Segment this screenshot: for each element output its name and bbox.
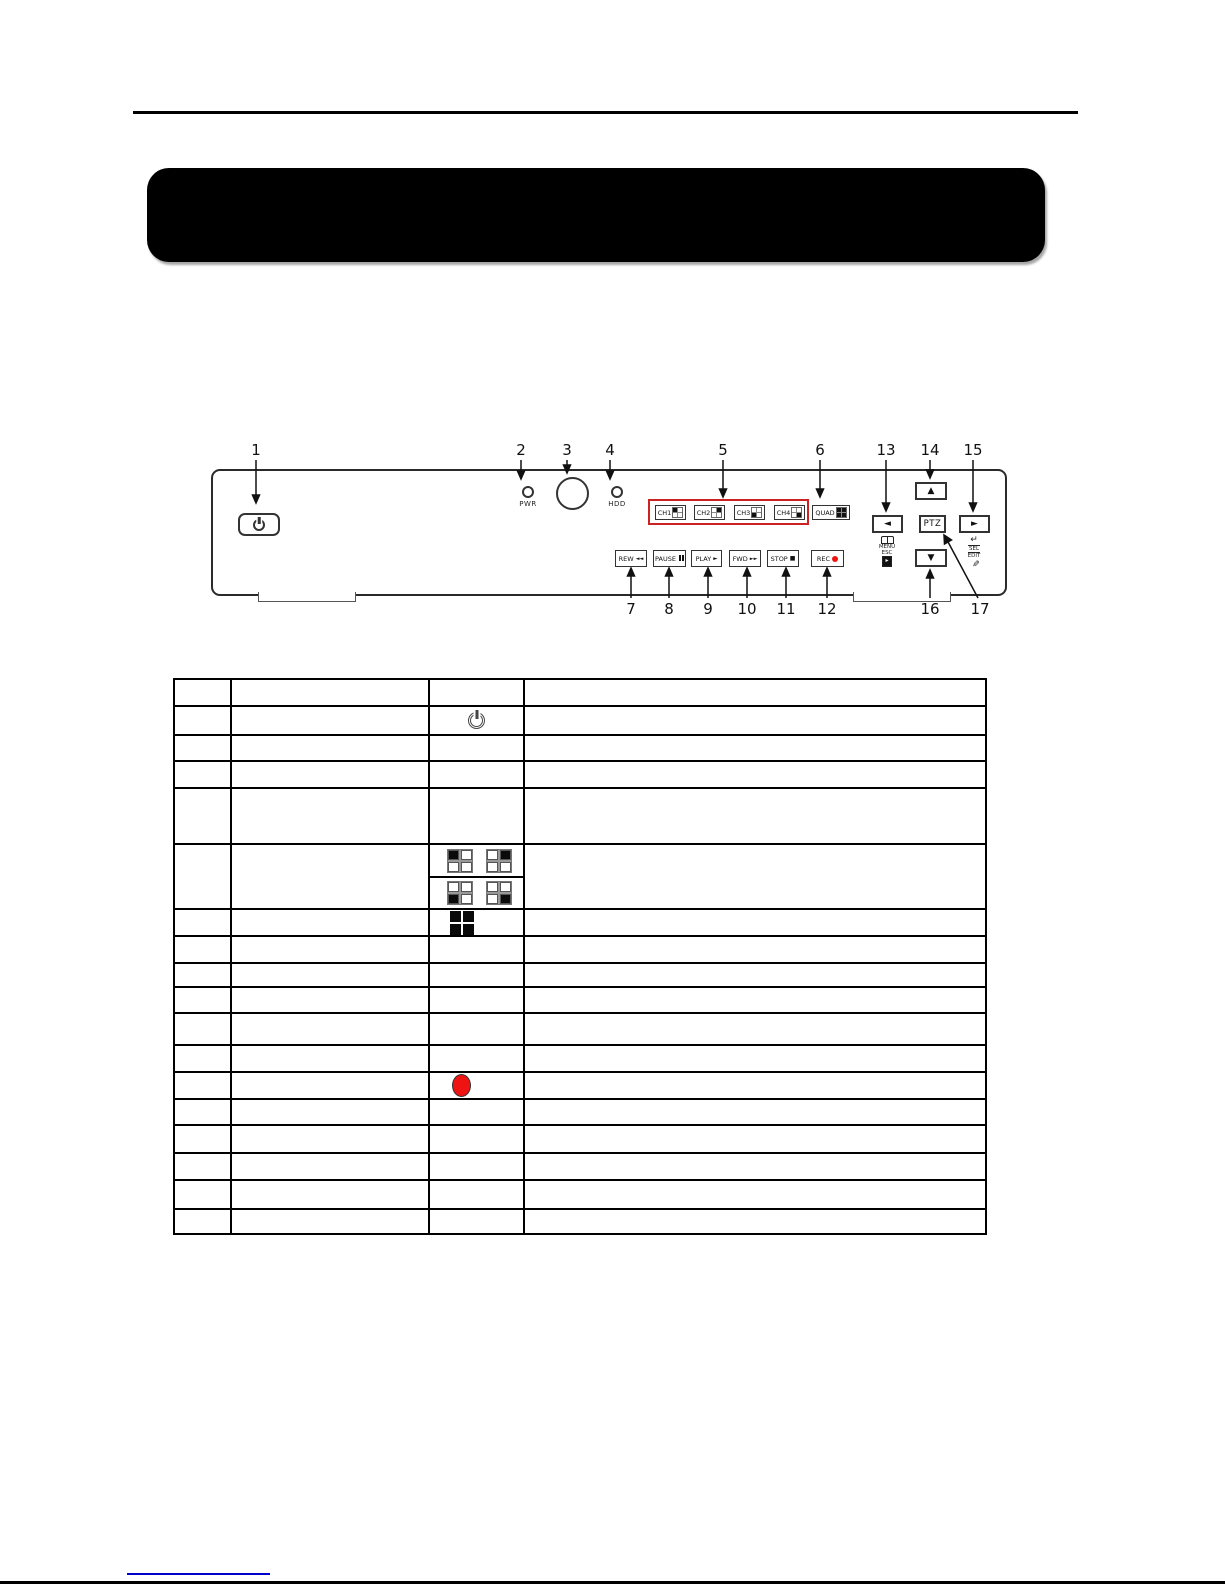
callout-5: 5 xyxy=(718,441,728,459)
exit-door-icon: ▸ xyxy=(882,556,892,567)
power-icon xyxy=(253,519,265,531)
ptz-label: PTZ xyxy=(924,519,942,529)
right-select-button[interactable]: ► xyxy=(959,515,990,533)
power-icon xyxy=(468,712,485,729)
footer-link-underline[interactable] xyxy=(127,1573,270,1575)
hdd-led-label: HDD xyxy=(603,500,631,508)
quad-all-icon xyxy=(450,911,523,935)
up-button[interactable]: ▲ xyxy=(915,482,947,500)
callout-12: 12 xyxy=(817,600,836,618)
record-dot-icon xyxy=(452,1074,471,1097)
table-row-7 xyxy=(174,936,986,963)
table-row-16 xyxy=(174,1180,986,1209)
table-row-4 xyxy=(174,788,986,844)
stop-label: STOP xyxy=(771,555,788,563)
ch1-label: CH1 xyxy=(658,509,672,517)
menu-esc-legend: MENU ESC ▸ xyxy=(876,536,898,567)
table-header-row xyxy=(174,679,986,706)
pause-button[interactable]: PAUSE xyxy=(653,550,686,567)
table-row-13 xyxy=(174,1099,986,1125)
sel-label: SEL xyxy=(968,545,980,553)
page-bottom-rule xyxy=(0,1581,1225,1584)
table-row-9 xyxy=(174,987,986,1013)
quad-bottom-right-icon xyxy=(791,507,802,518)
quad-button[interactable]: QUAD xyxy=(812,505,850,520)
play-label: PLAY xyxy=(696,555,712,563)
pencil-icon: ✎ xyxy=(969,560,978,568)
left-menu-button[interactable]: ◄ xyxy=(872,515,903,533)
enter-icon: ↵ xyxy=(970,536,978,545)
quad-bottom-right-icon xyxy=(486,881,512,905)
edit-label: EDIT xyxy=(968,553,981,559)
play-icon: ► xyxy=(713,556,717,562)
callout-1: 1 xyxy=(251,441,261,459)
ch4-button[interactable]: CH4 xyxy=(774,505,805,520)
fwd-label: FWD xyxy=(733,555,748,563)
rewind-icon: ◄◄ xyxy=(636,556,644,562)
callout-11: 11 xyxy=(776,600,795,618)
callout-17: 17 xyxy=(970,600,989,618)
ch1-button[interactable]: CH1 xyxy=(655,505,686,520)
table-row-1 xyxy=(174,706,986,735)
record-icon xyxy=(832,556,838,562)
right-arrow-icon: ► xyxy=(971,519,978,529)
ir-receiver xyxy=(556,477,589,510)
callout-8: 8 xyxy=(664,600,674,618)
ch2-button[interactable]: CH2 xyxy=(694,505,725,520)
callout-13: 13 xyxy=(876,441,895,459)
table-row-8 xyxy=(174,963,986,987)
table-row-15 xyxy=(174,1153,986,1180)
ch3-button[interactable]: CH3 xyxy=(734,505,765,520)
ptz-button[interactable]: PTZ xyxy=(919,515,946,533)
quad-label: QUAD xyxy=(815,509,834,517)
forward-icon: ►► xyxy=(750,556,758,562)
table-row-3 xyxy=(174,761,986,788)
table-row-12 xyxy=(174,1072,986,1099)
play-button[interactable]: PLAY► xyxy=(691,550,722,567)
pwr-led-label: PWR xyxy=(514,500,542,508)
fwd-button[interactable]: FWD►► xyxy=(729,550,761,567)
pwr-led xyxy=(522,486,534,498)
quad-bottom-left-icon xyxy=(447,881,473,905)
ch2-label: CH2 xyxy=(697,509,711,517)
callout-9: 9 xyxy=(703,600,713,618)
callout-2: 2 xyxy=(516,441,526,459)
rec-button[interactable]: REC xyxy=(811,550,844,567)
pause-icon xyxy=(678,555,684,563)
callout-16: 16 xyxy=(920,600,939,618)
stop-icon: ■ xyxy=(790,555,796,562)
callout-14: 14 xyxy=(920,441,939,459)
quad-all-icon xyxy=(836,507,847,518)
callout-6: 6 xyxy=(815,441,825,459)
callout-4: 4 xyxy=(605,441,615,459)
menu-book-icon xyxy=(881,536,894,544)
table-row-10 xyxy=(174,1013,986,1045)
quad-top-right-icon xyxy=(486,849,512,873)
quad-top-left-icon xyxy=(447,849,473,873)
down-button[interactable]: ▼ xyxy=(915,549,947,567)
pause-label: PAUSE xyxy=(655,555,676,563)
callout-15: 15 xyxy=(963,441,982,459)
down-arrow-icon: ▼ xyxy=(928,553,935,563)
parts-table xyxy=(173,678,987,1235)
rew-button[interactable]: REW◄◄ xyxy=(615,550,647,567)
quad-bottom-left-icon xyxy=(751,507,762,518)
ch3-label: CH3 xyxy=(737,509,751,517)
power-button[interactable] xyxy=(238,513,280,536)
hdd-led xyxy=(611,486,623,498)
sel-edit-legend: ↵ SEL EDIT ✎ xyxy=(963,536,985,568)
table-row-5 xyxy=(174,844,986,909)
title-banner xyxy=(147,168,1045,262)
callout-10: 10 xyxy=(737,600,756,618)
ch4-label: CH4 xyxy=(777,509,791,517)
stop-button[interactable]: STOP■ xyxy=(767,550,799,567)
table-row-6 xyxy=(174,909,986,936)
rec-label: REC xyxy=(817,555,830,563)
table-row-14 xyxy=(174,1125,986,1153)
table-row-17 xyxy=(174,1209,986,1234)
callout-3: 3 xyxy=(562,441,572,459)
callout-7: 7 xyxy=(626,600,636,618)
left-arrow-icon: ◄ xyxy=(884,519,891,529)
rew-label: REW xyxy=(619,555,634,563)
header-rule xyxy=(133,111,1078,114)
up-arrow-icon: ▲ xyxy=(928,486,935,496)
quad-top-left-icon xyxy=(672,507,683,518)
table-row-11 xyxy=(174,1045,986,1072)
table-row-2 xyxy=(174,735,986,761)
quad-top-right-icon xyxy=(711,507,722,518)
